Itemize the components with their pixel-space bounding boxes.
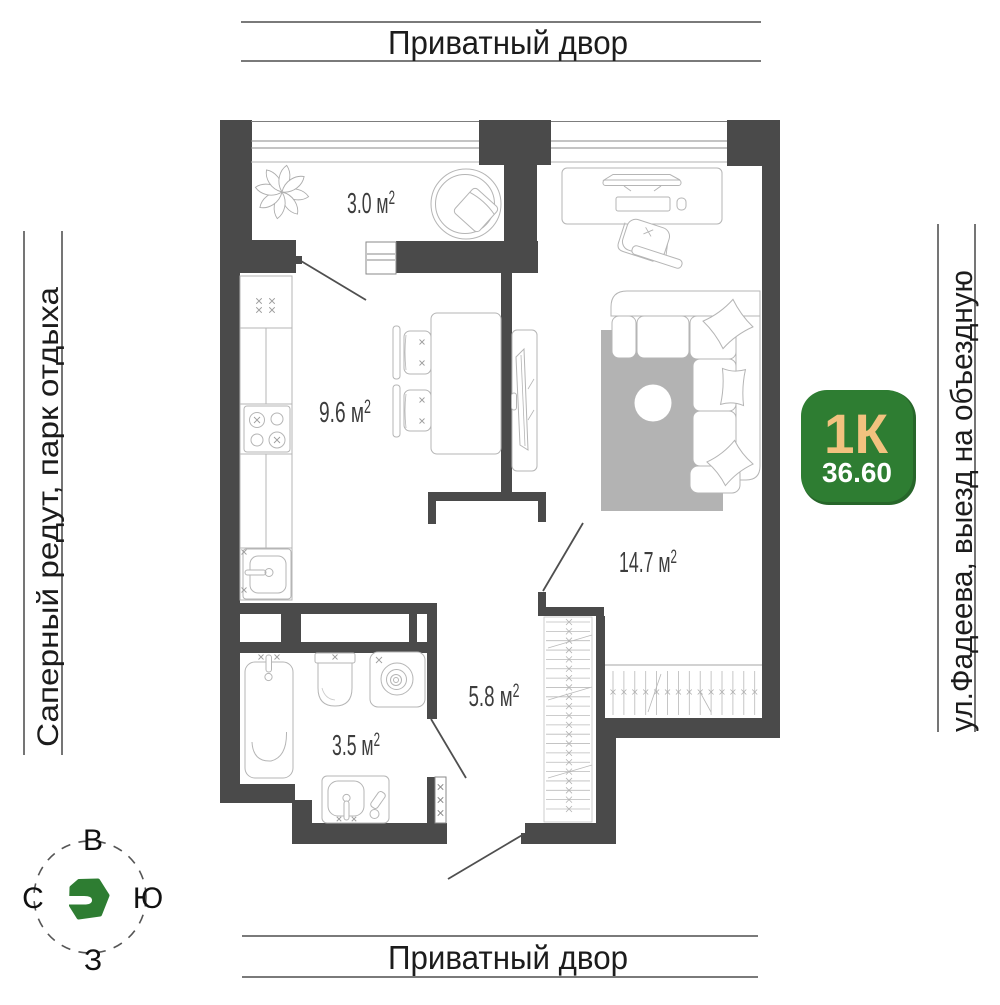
svg-text:Приватный двор: Приватный двор: [388, 939, 628, 976]
svg-text:Ю: Ю: [133, 882, 163, 915]
svg-text:ул.Фадеева, выезд на объездную: ул.Фадеева, выезд на объездную: [944, 270, 979, 732]
svg-text:3.5 м2: 3.5 м2: [332, 730, 380, 762]
svg-text:5.8 м2: 5.8 м2: [469, 681, 520, 713]
svg-text:Саперный редут, парк отдыха: Саперный редут, парк отдыха: [32, 287, 65, 747]
svg-text:9.6 м2: 9.6 м2: [319, 397, 371, 429]
svg-text:3.0 м2: 3.0 м2: [347, 188, 395, 220]
svg-text:Приватный двор: Приватный двор: [388, 24, 628, 61]
svg-text:36.60: 36.60: [822, 457, 892, 488]
svg-text:В: В: [83, 824, 103, 857]
svg-text:С: С: [22, 882, 44, 915]
svg-text:14.7 м2: 14.7 м2: [619, 547, 677, 579]
svg-text:З: З: [84, 944, 102, 977]
svg-text:1К: 1К: [824, 402, 889, 465]
